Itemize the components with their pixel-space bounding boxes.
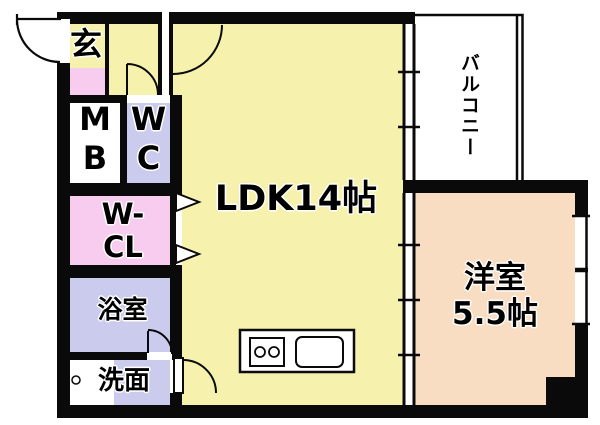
wall-row-divider-2 bbox=[70, 265, 182, 278]
floor-plan: 玄 M B W C W- CL 浴室 洗面 LDK14帖 バルコニー 洋室 5.… bbox=[0, 0, 600, 425]
western-line1: 洋室 bbox=[415, 261, 575, 297]
toilet-label: W C bbox=[127, 100, 170, 178]
entrance-door-swing-icon bbox=[17, 14, 61, 62]
wall-mb-wc-divider bbox=[120, 103, 127, 183]
bathroom-label: 浴室 bbox=[70, 296, 175, 324]
wcl-line2: CL bbox=[70, 231, 176, 264]
western-line2: 5.5帖 bbox=[415, 297, 575, 333]
balcony-label: バルコニー bbox=[453, 30, 479, 180]
genkan-step bbox=[70, 68, 107, 95]
corner-pillar bbox=[546, 377, 588, 418]
wall-left bbox=[57, 12, 70, 418]
toilet-line2: C bbox=[127, 139, 170, 178]
wall-top bbox=[57, 12, 415, 24]
western-window-opening bbox=[575, 215, 588, 325]
ldk-label: LDK14帖 bbox=[186, 180, 406, 219]
wcl-line1: W- bbox=[70, 198, 176, 231]
washroom-label: 洗面 bbox=[74, 367, 174, 396]
genkan-label: 玄 bbox=[65, 27, 107, 62]
wall-bottom bbox=[57, 405, 588, 418]
wall-western-top bbox=[403, 180, 588, 193]
meter-box-label: M B bbox=[70, 100, 120, 178]
walk-in-closet-label: W- CL bbox=[70, 198, 176, 265]
meter-box-line2: B bbox=[70, 139, 120, 178]
meter-box-line1: M bbox=[70, 100, 120, 139]
toilet-line1: W bbox=[127, 100, 170, 139]
closet-front-opening bbox=[176, 196, 182, 265]
ldk-door-leaf bbox=[162, 12, 169, 95]
wall-row-divider-1 bbox=[70, 183, 182, 196]
bathroom-doorway bbox=[147, 352, 172, 360]
hallway bbox=[107, 24, 158, 95]
western-room-label: 洋室 5.5帖 bbox=[415, 261, 575, 332]
